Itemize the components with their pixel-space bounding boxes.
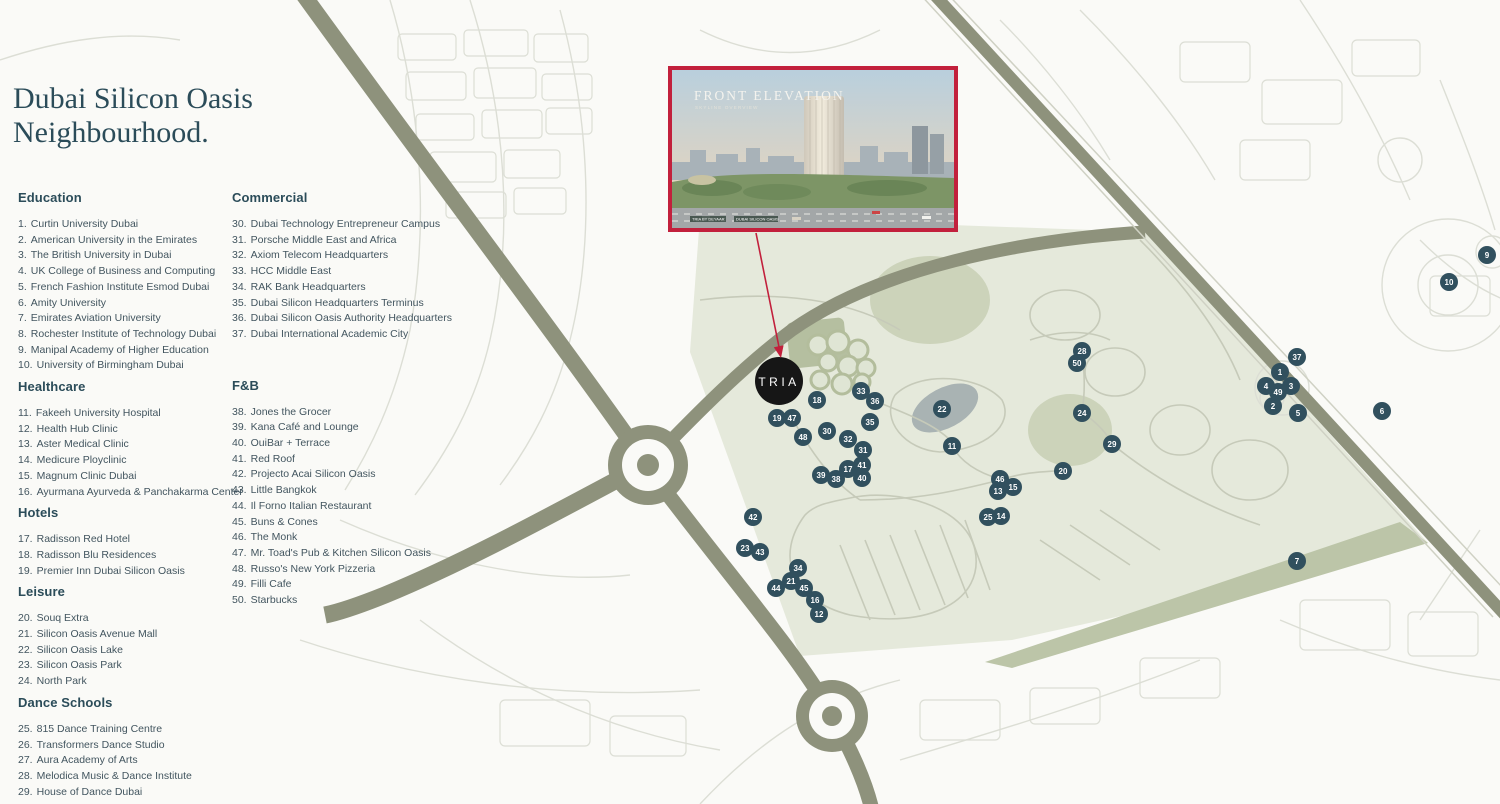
svg-text:2: 2	[1271, 402, 1276, 411]
section-heading: Commercial	[232, 190, 447, 205]
legend-item: 48.Russo's New York Pizzeria	[232, 562, 447, 578]
legend-item: 36.Dubai Silicon Oasis Authority Headqua…	[232, 311, 447, 327]
map-marker-50: 50	[1068, 354, 1086, 372]
legend-column-1: Education1.Curtin University Dubai2.Amer…	[18, 190, 223, 800]
svg-text:15: 15	[1009, 483, 1018, 492]
svg-text:38: 38	[832, 475, 841, 484]
section-heading: Leisure	[18, 584, 223, 599]
legend-item: 31.Porsche Middle East and Africa	[232, 233, 447, 249]
legend-item: 32.Axiom Telecom Headquarters	[232, 248, 447, 264]
svg-text:31: 31	[859, 446, 868, 455]
map-marker-49: 49	[1269, 383, 1287, 401]
map-marker-39: 39	[812, 466, 830, 484]
legend-item: 10.University of Birmingham Dubai	[18, 358, 223, 374]
map-marker-6: 6	[1373, 402, 1391, 420]
svg-text:47: 47	[788, 414, 797, 423]
map-marker-11: 11	[943, 437, 961, 455]
svg-text:33: 33	[857, 387, 866, 396]
map-marker-5: 5	[1289, 404, 1307, 422]
inset-sign-right: DUBAI SILICON OASIS	[736, 217, 779, 222]
svg-text:12: 12	[815, 610, 824, 619]
svg-text:24: 24	[1078, 409, 1087, 418]
legend-item: 9.Manipal Academy of Higher Education	[18, 343, 223, 359]
map-marker-36: 36	[866, 392, 884, 410]
tria-label: TRIA	[758, 375, 799, 389]
legend-item: 38.Jones the Grocer	[232, 405, 447, 421]
svg-text:11: 11	[948, 442, 957, 451]
section-heading: F&B	[232, 378, 447, 393]
svg-text:37: 37	[1293, 353, 1302, 362]
svg-text:48: 48	[799, 433, 808, 442]
section-list: 17.Radisson Red Hotel18.Radisson Blu Res…	[18, 532, 223, 579]
map-marker-7: 7	[1288, 552, 1306, 570]
svg-text:19: 19	[773, 414, 782, 423]
svg-text:29: 29	[1108, 440, 1117, 449]
svg-text:39: 39	[817, 471, 826, 480]
legend-item: 35.Dubai Silicon Headquarters Terminus	[232, 296, 447, 312]
svg-text:13: 13	[994, 487, 1003, 496]
legend-item: 19.Premier Inn Dubai Silicon Oasis	[18, 564, 223, 580]
inset-title: FRONT ELEVATION	[694, 88, 845, 103]
page-title: Dubai Silicon Oasis Neighbourhood.	[13, 82, 253, 150]
map-marker-37: 37	[1288, 348, 1306, 366]
svg-text:6: 6	[1380, 407, 1385, 416]
legend-item: 21.Silicon Oasis Avenue Mall	[18, 627, 223, 643]
legend-item: 40.OuiBar + Terrace	[232, 436, 447, 452]
legend-item: 39.Kana Café and Lounge	[232, 420, 447, 436]
legend-item: 17.Radisson Red Hotel	[18, 532, 223, 548]
legend-item: 29.House of Dance Dubai	[18, 785, 223, 801]
map-marker-32: 32	[839, 430, 857, 448]
legend-item: 14.Medicure Ployclinic	[18, 453, 223, 469]
map-marker-9: 9	[1478, 246, 1496, 264]
svg-text:42: 42	[749, 513, 758, 522]
legend-item: 16.Ayurmana Ayurveda & Panchakarma Cente…	[18, 485, 223, 501]
map-marker-10: 10	[1440, 273, 1458, 291]
map-marker-18: 18	[808, 391, 826, 409]
legend-item: 49.Filli Cafe	[232, 577, 447, 593]
legend-item: 20.Souq Extra	[18, 611, 223, 627]
legend-item: 18.Radisson Blu Residences	[18, 548, 223, 564]
svg-text:32: 32	[844, 435, 853, 444]
legend-item: 27.Aura Academy of Arts	[18, 753, 223, 769]
map-marker-42: 42	[744, 508, 762, 526]
map-marker-48: 48	[794, 428, 812, 446]
svg-text:43: 43	[756, 548, 765, 557]
legend-item: 12.Health Hub Clinic	[18, 422, 223, 438]
legend-item: 43.Little Bangkok	[232, 483, 447, 499]
map-marker-22: 22	[933, 400, 951, 418]
svg-text:34: 34	[794, 564, 803, 573]
svg-text:4: 4	[1264, 382, 1269, 391]
svg-text:46: 46	[996, 475, 1005, 484]
svg-text:22: 22	[938, 405, 947, 414]
page-title-line-2: Neighbourhood.	[13, 116, 253, 150]
svg-text:49: 49	[1274, 388, 1283, 397]
map-marker-1: 1	[1271, 363, 1289, 381]
legend-item: 11.Fakeeh University Hospital	[18, 406, 223, 422]
svg-text:10: 10	[1445, 278, 1454, 287]
legend-item: 45.Buns & Cones	[232, 515, 447, 531]
section-heading: Hotels	[18, 505, 223, 520]
svg-text:25: 25	[984, 513, 993, 522]
section-list: 1.Curtin University Dubai2.American Univ…	[18, 217, 223, 374]
inset-sign-left: TRIA BY DEYAAR	[692, 217, 725, 222]
legend-column-2: Commercial30.Dubai Technology Entreprene…	[232, 190, 447, 609]
legend-item: 50.Starbucks	[232, 593, 447, 609]
svg-text:23: 23	[741, 544, 750, 553]
svg-text:16: 16	[811, 596, 820, 605]
section-heading: Healthcare	[18, 379, 223, 394]
inset-subtitle: SKYLINE OVERVIEW	[695, 105, 759, 110]
tria-project-marker: TRIA	[755, 357, 803, 405]
legend-item: 26.Transformers Dance Studio	[18, 738, 223, 754]
map-marker-47: 47	[783, 409, 801, 427]
section-list: 20.Souq Extra21.Silicon Oasis Avenue Mal…	[18, 611, 223, 690]
map-marker-41: 41	[853, 456, 871, 474]
front-elevation-inset: FRONT ELEVATION SKYLINE OVERVIEW TRIA BY…	[668, 66, 958, 232]
legend-item: 46.The Monk	[232, 530, 447, 546]
svg-text:20: 20	[1059, 467, 1068, 476]
legend-item: 4.UK College of Business and Computing	[18, 264, 223, 280]
map-marker-24: 24	[1073, 404, 1091, 422]
legend-item: 2.American University in the Emirates	[18, 233, 223, 249]
svg-text:7: 7	[1295, 557, 1300, 566]
svg-text:5: 5	[1296, 409, 1301, 418]
legend-item: 42.Projecto Acai Silicon Oasis	[232, 467, 447, 483]
map-marker-34: 34	[789, 559, 807, 577]
svg-text:45: 45	[800, 584, 809, 593]
section-list: 25.815 Dance Training Centre26.Transform…	[18, 722, 223, 801]
front-elevation-render: FRONT ELEVATION SKYLINE OVERVIEW TRIA BY…	[672, 70, 954, 228]
page-title-line-1: Dubai Silicon Oasis	[13, 82, 253, 116]
legend-item: 23.Silicon Oasis Park	[18, 658, 223, 674]
svg-text:30: 30	[823, 427, 832, 436]
map-marker-44: 44	[767, 579, 785, 597]
legend-panel: Dubai Silicon Oasis Neighbourhood. Educa…	[0, 0, 460, 804]
legend-item: 1.Curtin University Dubai	[18, 217, 223, 233]
svg-text:36: 36	[871, 397, 880, 406]
legend-item: 22.Silicon Oasis Lake	[18, 643, 223, 659]
legend-item: 37.Dubai International Academic City	[232, 327, 447, 343]
svg-text:44: 44	[772, 584, 781, 593]
section-list: 11.Fakeeh University Hospital12.Health H…	[18, 406, 223, 500]
page: { "title": {"line1": "Dubai Silicon Oasi…	[0, 0, 1500, 804]
legend-item: 47.Mr. Toad's Pub & Kitchen Silicon Oasi…	[232, 546, 447, 562]
svg-text:17: 17	[844, 465, 853, 474]
map-marker-35: 35	[861, 413, 879, 431]
legend-item: 44.Il Forno Italian Restaurant	[232, 499, 447, 515]
map-marker-25: 25	[979, 508, 997, 526]
map-marker-46: 46	[991, 470, 1009, 488]
legend-item: 5.French Fashion Institute Esmod Dubai	[18, 280, 223, 296]
legend-item: 24.North Park	[18, 674, 223, 690]
section-heading: Education	[18, 190, 223, 205]
legend-item: 33.HCC Middle East	[232, 264, 447, 280]
svg-text:35: 35	[866, 418, 875, 427]
svg-text:41: 41	[858, 461, 867, 470]
legend-item: 6.Amity University	[18, 296, 223, 312]
park-foreground	[672, 174, 954, 210]
legend-item: 3.The British University in Dubai	[18, 248, 223, 264]
legend-item: 34.RAK Bank Headquarters	[232, 280, 447, 296]
svg-text:21: 21	[787, 577, 796, 586]
legend-item: 8.Rochester Institute of Technology Duba…	[18, 327, 223, 343]
map-marker-20: 20	[1054, 462, 1072, 480]
svg-text:40: 40	[858, 474, 867, 483]
map-marker-30: 30	[818, 422, 836, 440]
section-heading: Dance Schools	[18, 695, 223, 710]
legend-item: 25.815 Dance Training Centre	[18, 722, 223, 738]
svg-text:18: 18	[813, 396, 822, 405]
section-list: 38.Jones the Grocer39.Kana Café and Loun…	[232, 405, 447, 609]
map-marker-45: 45	[795, 579, 813, 597]
svg-text:14: 14	[997, 512, 1006, 521]
legend-item: 41.Red Roof	[232, 452, 447, 468]
legend-item: 30.Dubai Technology Entrepreneur Campus	[232, 217, 447, 233]
map-marker-29: 29	[1103, 435, 1121, 453]
svg-text:3: 3	[1289, 382, 1294, 391]
map-marker-43: 43	[751, 543, 769, 561]
section-list: 30.Dubai Technology Entrepreneur Campus3…	[232, 217, 447, 343]
svg-text:50: 50	[1073, 359, 1082, 368]
svg-text:9: 9	[1485, 251, 1490, 260]
legend-item: 7.Emirates Aviation University	[18, 311, 223, 327]
legend-item: 15.Magnum Clinic Dubai	[18, 469, 223, 485]
legend-item: 13.Aster Medical Clinic	[18, 437, 223, 453]
svg-text:1: 1	[1278, 368, 1283, 377]
legend-item: 28.Melodica Music & Dance Institute	[18, 769, 223, 785]
